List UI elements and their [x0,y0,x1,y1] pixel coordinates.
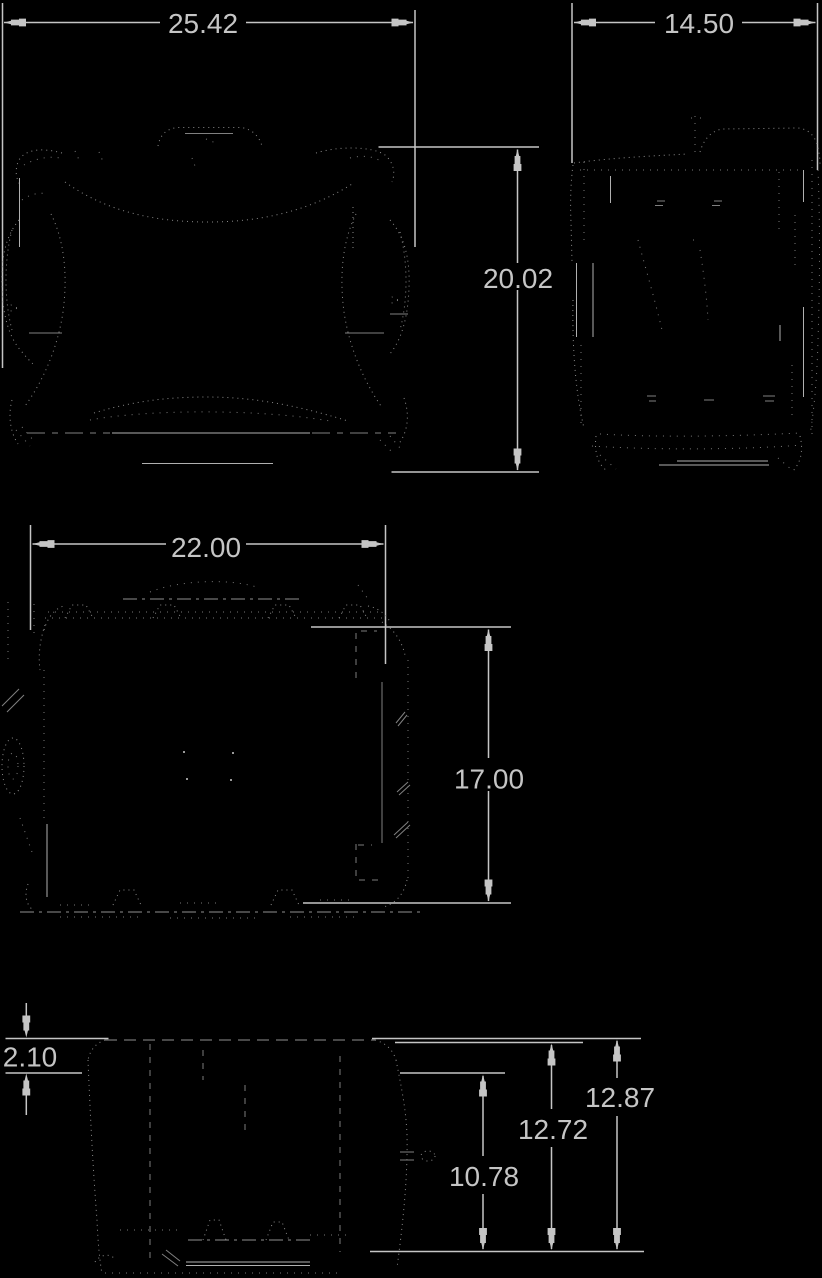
svg-text:2.10: 2.10 [3,1042,58,1073]
svg-text:22.00: 22.00 [171,532,241,563]
svg-text:12.87: 12.87 [585,1082,655,1113]
svg-text:20.02: 20.02 [483,263,553,294]
svg-text:14.50: 14.50 [664,8,734,39]
svg-text:17.00: 17.00 [454,764,524,795]
svg-text:12.72: 12.72 [518,1114,588,1145]
svg-text:25.42: 25.42 [168,8,238,39]
svg-text:10.78: 10.78 [449,1161,519,1192]
